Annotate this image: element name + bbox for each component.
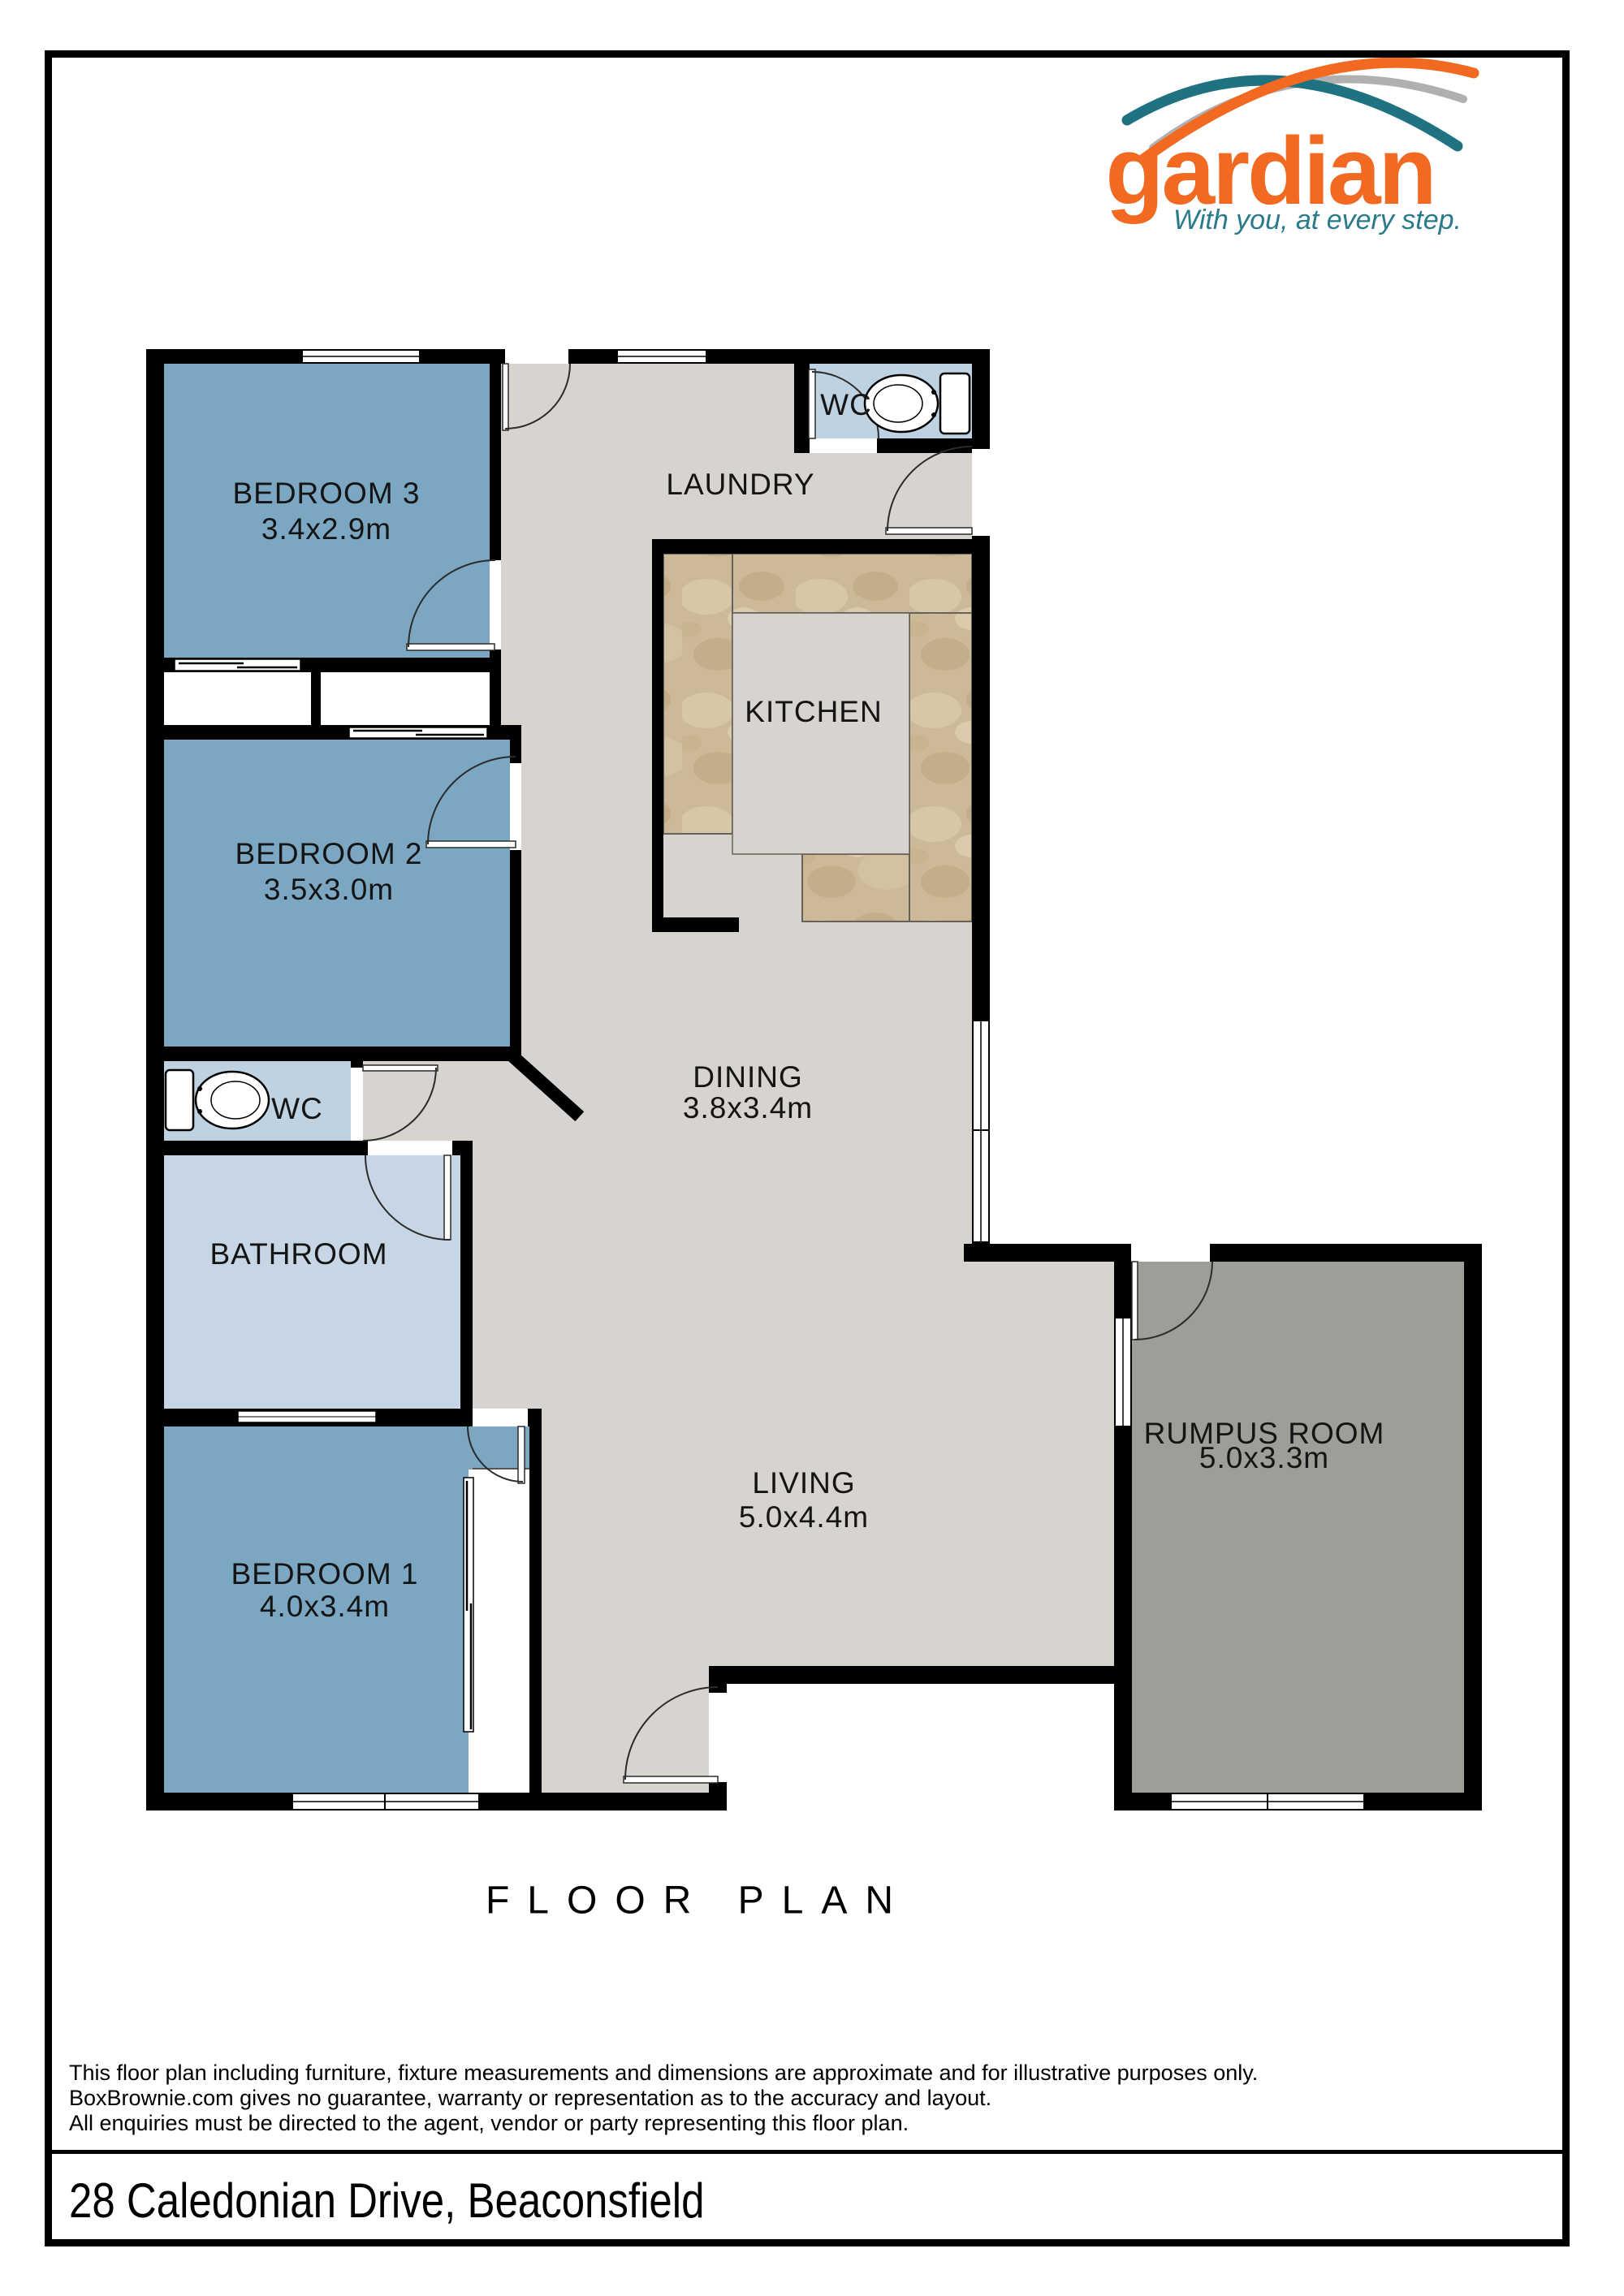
bedroom2-dims: 3.5x3.0m xyxy=(264,873,394,907)
bedroom1-label: BEDROOM 1 xyxy=(231,1557,418,1591)
disclaimer-line: All enquiries must be directed to the ag… xyxy=(69,2111,1258,2136)
bedroom2-label: BEDROOM 2 xyxy=(235,837,422,871)
rumpus-dims: 5.0x3.3m xyxy=(1199,1441,1329,1475)
property-address: 28 Caledonian Drive, Beaconsfield xyxy=(69,2173,704,2229)
bedroom3-label: BEDROOM 3 xyxy=(232,477,420,511)
floor-plan-page: gardian With you, at every step. BEDROOM… xyxy=(0,0,1624,2296)
wc-middle-label: WC xyxy=(271,1092,323,1126)
dining-dims: 3.8x3.4m xyxy=(683,1091,813,1125)
brand-tagline: With you, at every step. xyxy=(1161,205,1462,236)
disclaimer-text: This floor plan including furniture, fix… xyxy=(69,2061,1258,2136)
bedroom1-dims: 4.0x3.4m xyxy=(260,1590,390,1624)
bathroom-label: BATHROOM xyxy=(209,1237,387,1271)
disclaimer-line: This floor plan including furniture, fix… xyxy=(69,2061,1258,2086)
dining-label: DINING xyxy=(693,1060,803,1094)
wc-top-label: WC xyxy=(820,388,872,422)
laundry-label: LAUNDRY xyxy=(666,468,814,502)
living-label: LIVING xyxy=(752,1466,855,1500)
kitchen-label: KITCHEN xyxy=(745,695,882,729)
address-divider xyxy=(45,2150,1570,2154)
disclaimer-line: BoxBrownie.com gives no guarantee, warra… xyxy=(69,2086,1258,2111)
living-dims: 5.0x4.4m xyxy=(739,1500,869,1534)
page-title: FLOOR PLAN xyxy=(486,1879,911,1923)
bedroom3-dims: 3.4x2.9m xyxy=(261,512,391,546)
